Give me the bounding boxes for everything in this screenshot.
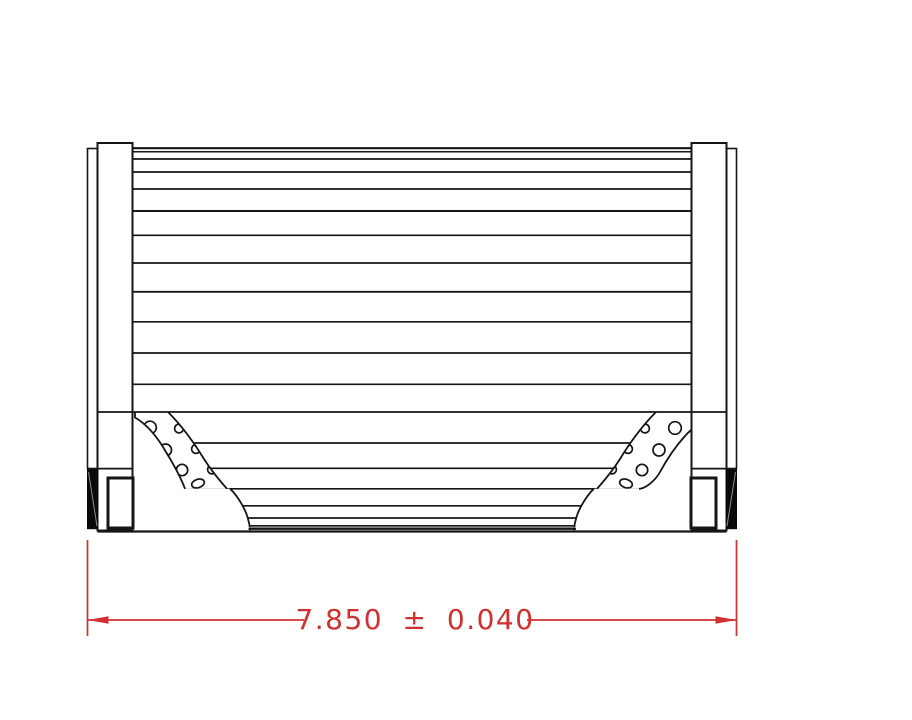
dimension-arrow-left (88, 616, 109, 623)
technical-drawing-canvas: 7.850 ± 0.040 (0, 0, 912, 720)
dimension-text: 7.850 ± 0.040 (295, 603, 534, 636)
left-end-cap-bar (98, 143, 133, 531)
perforation-hole (653, 444, 665, 456)
perforation-hole (636, 464, 647, 475)
drawing-viewport: 7.850 ± 0.040 (0, 0, 912, 720)
right-end-cap-bar (692, 143, 727, 531)
dimension-arrow-right (716, 616, 737, 623)
left-end-cap (87, 143, 133, 531)
left-cap-notch (108, 478, 133, 528)
right-cap-notch (691, 478, 716, 528)
right-end-cap (691, 143, 737, 531)
left-end-strip (88, 149, 98, 469)
perforation-hole (669, 422, 682, 435)
pleat-lines (133, 148, 691, 518)
right-end-strip (727, 149, 737, 469)
pleat-bottom-edge (249, 526, 577, 529)
